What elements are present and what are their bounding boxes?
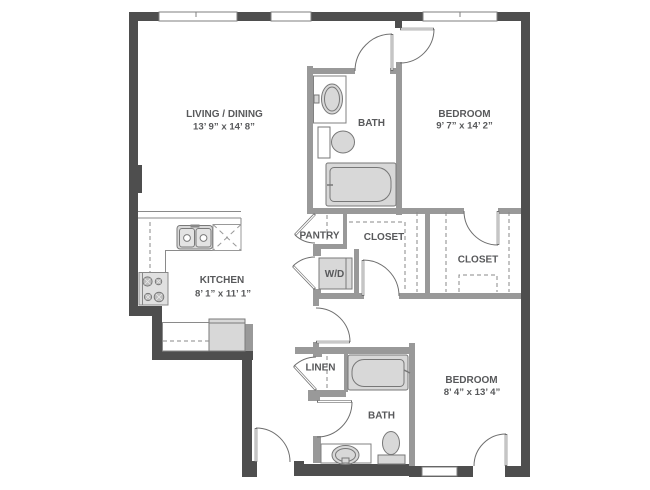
svg-text:8’ 1” x 11’ 1”: 8’ 1” x 11’ 1” <box>195 289 251 300</box>
svg-text:W/D: W/D <box>325 269 344 280</box>
svg-text:BATH: BATH <box>358 118 385 129</box>
svg-text:9’ 7” x 14’ 2”: 9’ 7” x 14’ 2” <box>436 121 493 132</box>
svg-text:KITCHEN: KITCHEN <box>200 275 244 286</box>
svg-text:CLOSET: CLOSET <box>458 255 499 266</box>
svg-text:LIVING / DINING: LIVING / DINING <box>186 109 263 120</box>
svg-text:13’ 9” x 14’ 8”: 13’ 9” x 14’ 8” <box>193 121 255 132</box>
svg-text:BEDROOM: BEDROOM <box>445 375 497 386</box>
svg-text:BEDROOM: BEDROOM <box>438 109 490 120</box>
svg-text:8’ 4” x 13’ 4”: 8’ 4” x 13’ 4” <box>444 387 501 398</box>
svg-text:PANTRY: PANTRY <box>300 231 340 242</box>
svg-text:LINEN: LINEN <box>306 363 336 374</box>
svg-text:CLOSET: CLOSET <box>364 232 405 243</box>
svg-text:BATH: BATH <box>368 410 395 421</box>
